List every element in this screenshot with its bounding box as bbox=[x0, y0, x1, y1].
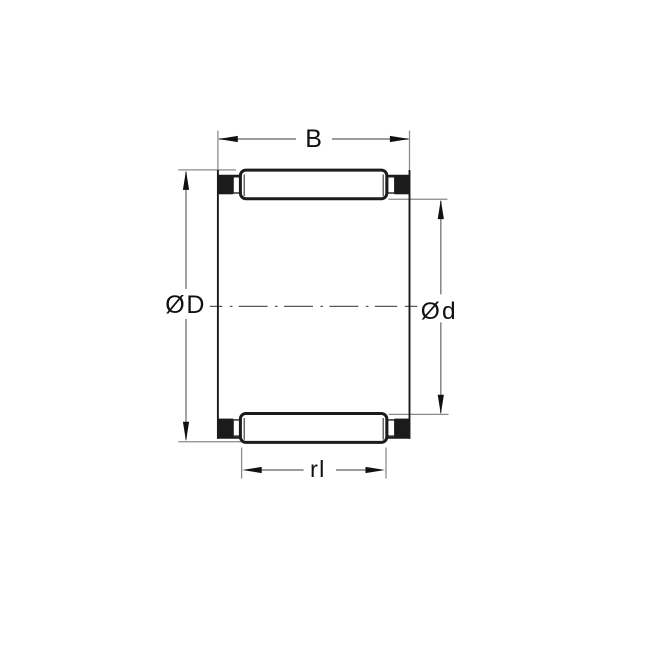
svg-text:ØD: ØD bbox=[165, 291, 206, 319]
svg-text:B: B bbox=[305, 125, 322, 153]
svg-text:rl: rl bbox=[310, 456, 326, 482]
svg-text:Ød: Ød bbox=[421, 298, 458, 325]
